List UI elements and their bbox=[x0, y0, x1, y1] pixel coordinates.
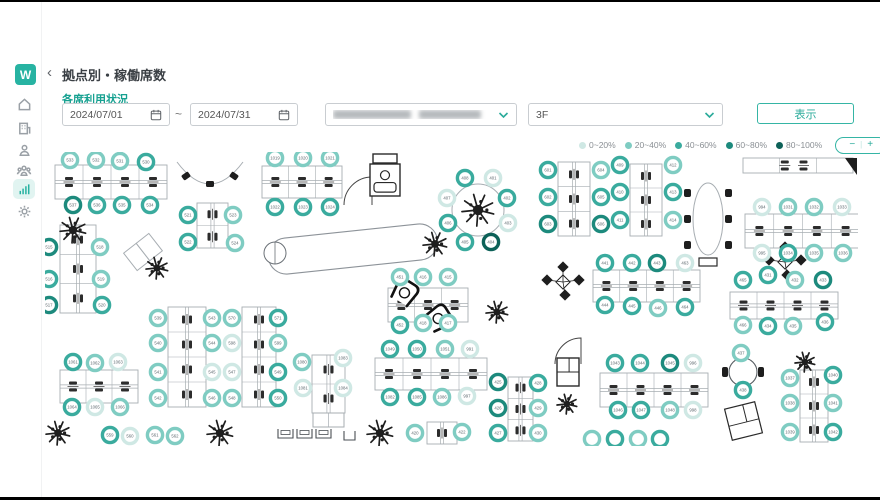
seat[interactable]: 543 bbox=[204, 310, 219, 325]
svg-text:435: 435 bbox=[789, 324, 797, 329]
seat[interactable]: 416 bbox=[415, 269, 430, 284]
workstation-glyph bbox=[437, 428, 447, 439]
floor-map-canvas[interactable]: 5335325315305375365355341019102010211022… bbox=[45, 152, 858, 446]
seat[interactable]: 1039 bbox=[782, 424, 797, 439]
seat[interactable]: 438 bbox=[735, 382, 750, 397]
svg-text:401: 401 bbox=[489, 176, 497, 181]
seat[interactable]: 1033 bbox=[834, 199, 849, 214]
seat[interactable]: 604 bbox=[593, 162, 608, 177]
seat[interactable]: 1061 bbox=[65, 354, 80, 369]
svg-text:434: 434 bbox=[764, 324, 772, 329]
svg-text:547: 547 bbox=[228, 370, 236, 375]
svg-text:427: 427 bbox=[494, 431, 502, 436]
seat[interactable]: 570 bbox=[224, 310, 239, 325]
seat[interactable]: 1081 bbox=[295, 380, 310, 395]
seat[interactable]: 463 bbox=[677, 255, 692, 270]
seat[interactable]: 531 bbox=[112, 153, 127, 168]
furniture-plant bbox=[367, 420, 393, 445]
seat[interactable]: 417 bbox=[440, 315, 455, 330]
workstation-glyph bbox=[270, 177, 281, 187]
workstation-glyph bbox=[254, 389, 264, 400]
seat[interactable]: 562 bbox=[167, 428, 182, 443]
seat[interactable]: 1024 bbox=[322, 199, 337, 214]
furniture-diamonds bbox=[541, 261, 584, 300]
seat[interactable]: 1038 bbox=[782, 395, 797, 410]
legend-item: 0~20% bbox=[579, 140, 616, 150]
seat[interactable]: 425 bbox=[490, 374, 505, 389]
seat[interactable]: 1031 bbox=[780, 199, 795, 214]
seat[interactable]: 1043 bbox=[607, 355, 622, 370]
svg-text:415: 415 bbox=[444, 275, 452, 280]
workstation-glyph bbox=[681, 281, 692, 291]
svg-text:562: 562 bbox=[171, 434, 179, 439]
svg-text:465: 465 bbox=[739, 278, 747, 283]
svg-text:1044: 1044 bbox=[635, 361, 645, 366]
seat[interactable]: 1063 bbox=[110, 354, 125, 369]
seat[interactable]: 602 bbox=[540, 189, 555, 204]
date-to-value: 2024/07/31 bbox=[198, 109, 278, 121]
seat[interactable]: 598 bbox=[224, 335, 239, 350]
settings-icon[interactable] bbox=[13, 201, 35, 221]
seat[interactable]: 603 bbox=[540, 216, 555, 231]
svg-text:524: 524 bbox=[231, 241, 239, 246]
seat[interactable]: 402 bbox=[499, 190, 514, 205]
seat[interactable]: 1084 bbox=[335, 380, 350, 395]
seat[interactable]: 536 bbox=[89, 197, 104, 212]
svg-text:1034: 1034 bbox=[783, 251, 793, 256]
seat[interactable]: 1022 bbox=[267, 199, 282, 214]
seat[interactable]: 443 bbox=[649, 255, 664, 270]
floor-value: 3F bbox=[536, 109, 704, 121]
plant bbox=[795, 352, 815, 372]
svg-text:544: 544 bbox=[208, 341, 216, 346]
furniture-stool bbox=[264, 242, 286, 264]
furniture-copier bbox=[557, 358, 579, 386]
seat[interactable]: 401 bbox=[485, 170, 500, 185]
svg-text:463: 463 bbox=[681, 261, 689, 266]
seat[interactable]: 412 bbox=[665, 157, 680, 172]
chevron-down-icon bbox=[704, 111, 715, 119]
svg-text:1083: 1083 bbox=[338, 356, 348, 361]
seat[interactable]: 1037 bbox=[782, 370, 797, 385]
svg-text:1024: 1024 bbox=[325, 205, 335, 210]
user-icon[interactable] bbox=[13, 140, 35, 160]
calendar-icon[interactable] bbox=[150, 109, 162, 121]
workstation-glyph bbox=[440, 369, 451, 379]
workstation-glyph bbox=[73, 293, 83, 304]
page-title: 拠点別・稼働席数 bbox=[62, 65, 166, 84]
zoom-in-button[interactable]: + bbox=[867, 140, 873, 150]
workstation-glyph bbox=[254, 364, 264, 375]
seat[interactable]: 403 bbox=[500, 215, 515, 230]
workstation-glyph bbox=[754, 226, 765, 236]
seat[interactable]: 599 bbox=[270, 335, 285, 350]
seat[interactable]: 547 bbox=[224, 364, 239, 379]
svg-text:1023: 1023 bbox=[298, 205, 308, 210]
window-top-border bbox=[0, 0, 880, 2]
workstation-glyph bbox=[811, 226, 822, 236]
seat[interactable]: 422 bbox=[454, 424, 469, 439]
seat[interactable]: 1041 bbox=[825, 395, 840, 410]
seat[interactable]: 1046 bbox=[610, 402, 625, 417]
seat[interactable]: 406 bbox=[440, 215, 455, 230]
seat[interactable]: 1085 bbox=[409, 389, 424, 404]
seat[interactable]: 1064 bbox=[64, 399, 79, 414]
seat[interactable]: 1035 bbox=[806, 245, 821, 260]
svg-text:991: 991 bbox=[466, 347, 474, 352]
furniture-lockers bbox=[278, 429, 355, 440]
workstation-glyph bbox=[662, 385, 673, 395]
seat[interactable]: 434 bbox=[760, 318, 775, 333]
seat[interactable]: 530 bbox=[138, 154, 153, 169]
show-button[interactable]: 表示 bbox=[757, 103, 854, 124]
seat[interactable]: 432 bbox=[787, 272, 802, 287]
desk-cluster bbox=[558, 162, 590, 236]
seat[interactable] bbox=[584, 431, 599, 446]
seat[interactable]: 409 bbox=[612, 157, 627, 172]
seat[interactable]: 1044 bbox=[632, 355, 647, 370]
seat[interactable]: 561 bbox=[147, 427, 162, 442]
svg-text:516: 516 bbox=[45, 277, 53, 282]
svg-text:1080: 1080 bbox=[297, 360, 307, 365]
workstation-glyph bbox=[738, 301, 749, 311]
furniture-counter bbox=[743, 158, 853, 173]
seat[interactable]: 405 bbox=[457, 234, 472, 249]
svg-text:1050: 1050 bbox=[412, 347, 422, 352]
svg-text:535: 535 bbox=[118, 203, 126, 208]
svg-text:996: 996 bbox=[689, 361, 697, 366]
analytics-icon[interactable] bbox=[13, 179, 35, 199]
workstation-glyph bbox=[635, 385, 646, 395]
seat[interactable]: 1042 bbox=[825, 424, 840, 439]
svg-text:543: 543 bbox=[208, 316, 216, 321]
seat[interactable]: 1019 bbox=[267, 152, 282, 166]
seat[interactable]: 537 bbox=[65, 197, 80, 212]
seat[interactable]: 1082 bbox=[382, 389, 397, 404]
workstation-glyph bbox=[94, 382, 105, 392]
seat[interactable]: 1048 bbox=[662, 402, 677, 417]
svg-text:542: 542 bbox=[154, 396, 162, 401]
svg-text:532: 532 bbox=[92, 158, 100, 163]
seat[interactable]: 1051 bbox=[437, 341, 452, 356]
svg-text:531: 531 bbox=[116, 159, 124, 164]
seat[interactable]: 415 bbox=[440, 269, 455, 284]
svg-text:412: 412 bbox=[669, 163, 677, 168]
chevron-down-icon bbox=[498, 111, 509, 119]
svg-text:536: 536 bbox=[93, 203, 101, 208]
seat[interactable]: 991 bbox=[462, 341, 477, 356]
seat[interactable]: 1066 bbox=[112, 399, 127, 414]
seat[interactable] bbox=[630, 431, 645, 446]
svg-text:1064: 1064 bbox=[67, 405, 77, 410]
members-icon[interactable] bbox=[13, 160, 35, 180]
seat[interactable]: 407 bbox=[439, 190, 454, 205]
date-from-input[interactable]: 2024/07/01 bbox=[62, 103, 170, 126]
workstation-glyph bbox=[798, 161, 809, 171]
seat[interactable]: 433 bbox=[815, 272, 830, 287]
location-select[interactable] bbox=[325, 103, 517, 126]
seat[interactable]: 442 bbox=[624, 255, 639, 270]
zoom-out-button[interactable]: − bbox=[849, 140, 855, 150]
plant bbox=[46, 421, 70, 445]
seat[interactable] bbox=[607, 431, 622, 446]
legend-dot bbox=[726, 142, 733, 149]
building-icon[interactable] bbox=[13, 118, 35, 138]
seat[interactable]: 1050 bbox=[409, 341, 424, 356]
svg-text:444: 444 bbox=[601, 303, 609, 308]
furniture-bench bbox=[177, 162, 243, 187]
svg-text:1062: 1062 bbox=[90, 361, 100, 366]
desk-cluster bbox=[427, 422, 457, 444]
seat[interactable]: 559 bbox=[102, 427, 117, 442]
seat[interactable]: 550 bbox=[270, 390, 285, 405]
workstation-glyph bbox=[208, 209, 218, 220]
date-to-input[interactable]: 2024/07/31 bbox=[190, 103, 298, 126]
svg-text:451: 451 bbox=[396, 275, 404, 280]
svg-text:436: 436 bbox=[821, 320, 829, 325]
workstation-glyph bbox=[809, 377, 819, 388]
date-from-value: 2024/07/01 bbox=[70, 109, 150, 121]
seat[interactable]: 1034 bbox=[780, 245, 795, 260]
seat[interactable]: 605 bbox=[593, 189, 608, 204]
seat[interactable]: 1080 bbox=[294, 354, 309, 369]
seat[interactable]: 1047 bbox=[633, 402, 648, 417]
svg-text:1081: 1081 bbox=[298, 386, 308, 391]
furniture-plant bbox=[486, 301, 508, 323]
seat[interactable]: 533 bbox=[62, 152, 77, 167]
workstation-glyph bbox=[254, 339, 264, 350]
home-icon[interactable] bbox=[13, 94, 35, 114]
desk-cluster bbox=[262, 166, 342, 198]
seat[interactable]: 1021 bbox=[322, 152, 337, 166]
svg-text:560: 560 bbox=[126, 434, 134, 439]
seat[interactable]: 520 bbox=[94, 297, 109, 312]
back-chevron[interactable]: ‹ bbox=[47, 64, 52, 81]
seat[interactable]: 408 bbox=[457, 170, 472, 185]
plant bbox=[367, 420, 393, 445]
svg-text:464: 464 bbox=[681, 305, 689, 310]
svg-text:1061: 1061 bbox=[68, 360, 78, 365]
workstation-glyph bbox=[779, 161, 790, 171]
seat[interactable]: 426 bbox=[490, 400, 505, 415]
seat[interactable]: 1049 bbox=[382, 341, 397, 356]
seat[interactable]: 1023 bbox=[295, 199, 310, 214]
svg-text:545: 545 bbox=[208, 370, 216, 375]
workstation-glyph bbox=[792, 301, 803, 311]
svg-text:430: 430 bbox=[534, 431, 542, 436]
svg-text:1046: 1046 bbox=[613, 408, 623, 413]
svg-text:438: 438 bbox=[739, 388, 747, 393]
seat[interactable] bbox=[652, 431, 667, 446]
svg-text:603: 603 bbox=[544, 222, 552, 227]
workstation-glyph bbox=[689, 385, 700, 395]
svg-text:1048: 1048 bbox=[665, 408, 675, 413]
svg-text:1031: 1031 bbox=[783, 205, 793, 210]
workstation-glyph bbox=[148, 177, 159, 187]
seat[interactable]: 601 bbox=[540, 162, 555, 177]
seat[interactable]: 466 bbox=[735, 317, 750, 332]
seat[interactable]: 413 bbox=[665, 184, 680, 199]
svg-text:1019: 1019 bbox=[270, 156, 280, 161]
seat[interactable]: 441 bbox=[597, 255, 612, 270]
seat[interactable]: 996 bbox=[685, 355, 700, 370]
seat[interactable]: 534 bbox=[142, 197, 157, 212]
svg-text:418: 418 bbox=[419, 321, 427, 326]
furniture-oval bbox=[684, 183, 732, 266]
svg-text:598: 598 bbox=[228, 341, 236, 346]
seat[interactable]: 430 bbox=[530, 425, 545, 440]
svg-text:433: 433 bbox=[819, 278, 827, 283]
seat[interactable]: 519 bbox=[93, 271, 108, 286]
svg-text:1045: 1045 bbox=[665, 361, 675, 366]
svg-text:520: 520 bbox=[98, 303, 106, 308]
seat[interactable]: 521 bbox=[180, 207, 195, 222]
svg-text:428: 428 bbox=[534, 381, 542, 386]
legend-dot bbox=[625, 142, 632, 149]
workstation-glyph bbox=[324, 364, 334, 375]
seat[interactable]: 541 bbox=[150, 364, 165, 379]
workstation-glyph bbox=[641, 171, 651, 182]
date-range-separator: ~ bbox=[175, 107, 182, 121]
furniture-cabinet bbox=[725, 402, 763, 441]
seat[interactable]: 997 bbox=[459, 388, 474, 403]
svg-text:570: 570 bbox=[228, 316, 236, 321]
seat[interactable]: 515 bbox=[45, 239, 57, 254]
seat[interactable]: 1032 bbox=[806, 199, 821, 214]
seat[interactable]: 435 bbox=[785, 318, 800, 333]
svg-text:1043: 1043 bbox=[610, 361, 620, 366]
furniture-plant bbox=[46, 421, 70, 445]
seat[interactable]: 1083 bbox=[335, 350, 350, 365]
svg-text:606: 606 bbox=[597, 222, 605, 227]
workstation-glyph bbox=[412, 369, 423, 379]
seat[interactable]: 420 bbox=[407, 425, 422, 440]
seat[interactable]: 523 bbox=[225, 207, 240, 222]
seat[interactable]: 446 bbox=[650, 300, 665, 315]
seat[interactable]: 606 bbox=[593, 216, 608, 231]
seat[interactable]: 545 bbox=[204, 364, 219, 379]
seat[interactable]: 549 bbox=[270, 364, 285, 379]
plant bbox=[557, 394, 577, 414]
workstation-glyph bbox=[323, 177, 334, 187]
svg-text:1040: 1040 bbox=[828, 373, 838, 378]
zoom-divider: | bbox=[860, 141, 862, 149]
legend-item: 80~100% bbox=[776, 140, 822, 150]
seat[interactable]: 1020 bbox=[295, 152, 310, 166]
seat[interactable]: 452 bbox=[392, 317, 407, 332]
seat[interactable]: 518 bbox=[92, 239, 107, 254]
workstation-glyph bbox=[384, 369, 395, 379]
desk-cluster bbox=[197, 203, 228, 248]
workstation-glyph bbox=[120, 382, 131, 392]
seat[interactable]: 539 bbox=[150, 310, 165, 325]
workstation-glyph bbox=[92, 177, 103, 187]
svg-text:1022: 1022 bbox=[270, 205, 280, 210]
svg-text:530: 530 bbox=[142, 160, 150, 165]
seat[interactable]: 428 bbox=[530, 375, 545, 390]
seat[interactable]: 445 bbox=[624, 298, 639, 313]
seat[interactable]: 560 bbox=[122, 428, 137, 443]
seat[interactable]: 1065 bbox=[87, 399, 102, 414]
svg-text:1065: 1065 bbox=[90, 405, 100, 410]
svg-text:1041: 1041 bbox=[828, 401, 838, 406]
legend-dot bbox=[776, 142, 783, 149]
workstation-glyph bbox=[840, 226, 851, 236]
workstation-glyph bbox=[641, 219, 651, 230]
seat[interactable]: 532 bbox=[88, 152, 103, 167]
seat[interactable]: 1040 bbox=[825, 367, 840, 382]
seat[interactable]: 437 bbox=[733, 345, 748, 360]
svg-text:445: 445 bbox=[628, 304, 636, 309]
seat[interactable]: 542 bbox=[150, 390, 165, 405]
desk-cluster bbox=[745, 214, 858, 248]
seat[interactable]: 540 bbox=[150, 335, 165, 350]
svg-text:549: 549 bbox=[274, 370, 282, 375]
workstation-glyph bbox=[601, 281, 612, 291]
svg-text:1035: 1035 bbox=[809, 251, 819, 256]
svg-text:604: 604 bbox=[597, 168, 605, 173]
workstation-glyph bbox=[182, 314, 192, 325]
svg-text:523: 523 bbox=[229, 213, 237, 218]
seat[interactable]: 1086 bbox=[434, 389, 449, 404]
seat[interactable]: 431 bbox=[760, 267, 775, 282]
seat[interactable]: 998 bbox=[685, 402, 700, 417]
seat[interactable]: 546 bbox=[204, 390, 219, 405]
seat[interactable]: 522 bbox=[180, 234, 195, 249]
seat[interactable]: 517 bbox=[45, 297, 57, 312]
seat[interactable]: 516 bbox=[45, 271, 57, 286]
seat[interactable]: 994 bbox=[754, 199, 769, 214]
seat[interactable]: 1036 bbox=[835, 245, 850, 260]
seat[interactable]: 427 bbox=[490, 425, 505, 440]
seat[interactable]: 524 bbox=[227, 235, 242, 250]
seat[interactable]: 1045 bbox=[662, 355, 677, 370]
seat[interactable]: 451 bbox=[392, 269, 407, 284]
seat[interactable]: 414 bbox=[665, 212, 680, 227]
seat[interactable]: 1062 bbox=[87, 355, 102, 370]
seat[interactable]: 411 bbox=[612, 212, 627, 227]
svg-text:420: 420 bbox=[411, 431, 419, 436]
workstation-glyph bbox=[182, 389, 192, 400]
seat[interactable]: 535 bbox=[114, 197, 129, 212]
seat[interactable]: 410 bbox=[612, 184, 627, 199]
furniture-plant bbox=[795, 352, 815, 372]
calendar-icon[interactable] bbox=[278, 109, 290, 121]
seat[interactable]: 548 bbox=[224, 390, 239, 405]
svg-text:605: 605 bbox=[597, 195, 605, 200]
workstation-glyph bbox=[68, 382, 79, 392]
seat[interactable]: 436 bbox=[817, 314, 832, 329]
map-zoom-control[interactable]: − | + bbox=[835, 137, 880, 154]
seat[interactable]: 571 bbox=[270, 310, 285, 325]
seat[interactable]: 995 bbox=[754, 245, 769, 260]
svg-text:437: 437 bbox=[737, 351, 745, 356]
workstation-glyph bbox=[608, 385, 619, 395]
seat[interactable]: 444 bbox=[597, 297, 612, 312]
floor-select[interactable]: 3F bbox=[528, 103, 723, 126]
seat[interactable]: 429 bbox=[530, 400, 545, 415]
seat[interactable]: 418 bbox=[415, 315, 430, 330]
workstation-glyph bbox=[297, 177, 308, 187]
svg-text:515: 515 bbox=[45, 245, 53, 250]
seat[interactable]: 544 bbox=[204, 335, 219, 350]
seat[interactable]: 404 bbox=[483, 234, 498, 249]
svg-text:1033: 1033 bbox=[837, 205, 847, 210]
seat[interactable]: 465 bbox=[735, 272, 750, 287]
svg-text:407: 407 bbox=[443, 196, 451, 201]
legend-item: 60~80% bbox=[726, 140, 767, 150]
seat[interactable]: 464 bbox=[677, 299, 692, 314]
